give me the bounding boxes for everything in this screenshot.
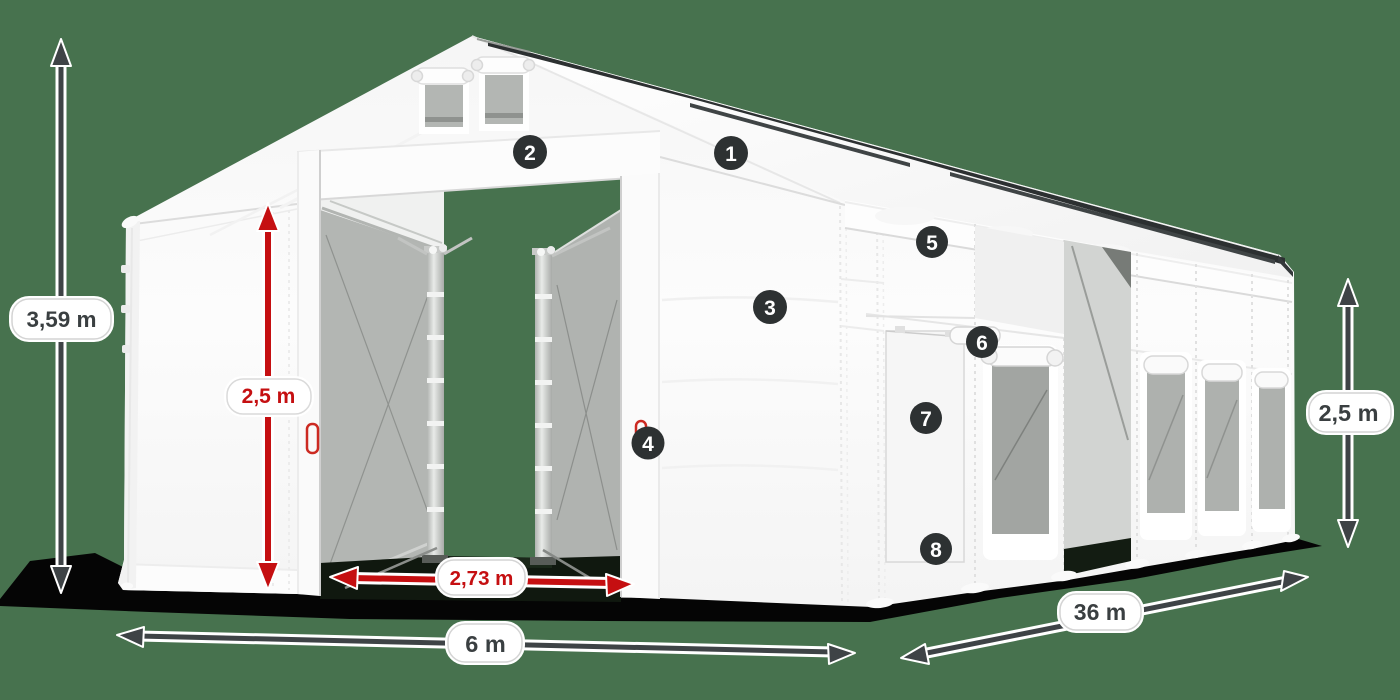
svg-text:3: 3 xyxy=(764,297,776,320)
svg-text:7: 7 xyxy=(920,408,932,431)
svg-text:6 m: 6 m xyxy=(465,631,506,657)
svg-text:6: 6 xyxy=(976,332,988,355)
svg-text:5: 5 xyxy=(926,232,938,255)
svg-text:2,5 m: 2,5 m xyxy=(1318,400,1378,426)
svg-text:2,5 m: 2,5 m xyxy=(242,385,296,408)
svg-text:1: 1 xyxy=(725,143,737,166)
svg-text:4: 4 xyxy=(642,433,654,456)
svg-text:2,73 m: 2,73 m xyxy=(450,567,514,590)
svg-text:8: 8 xyxy=(930,539,942,562)
svg-text:2: 2 xyxy=(524,142,536,165)
svg-text:3,59 m: 3,59 m xyxy=(26,307,96,332)
svg-text:36 m: 36 m xyxy=(1074,599,1126,625)
